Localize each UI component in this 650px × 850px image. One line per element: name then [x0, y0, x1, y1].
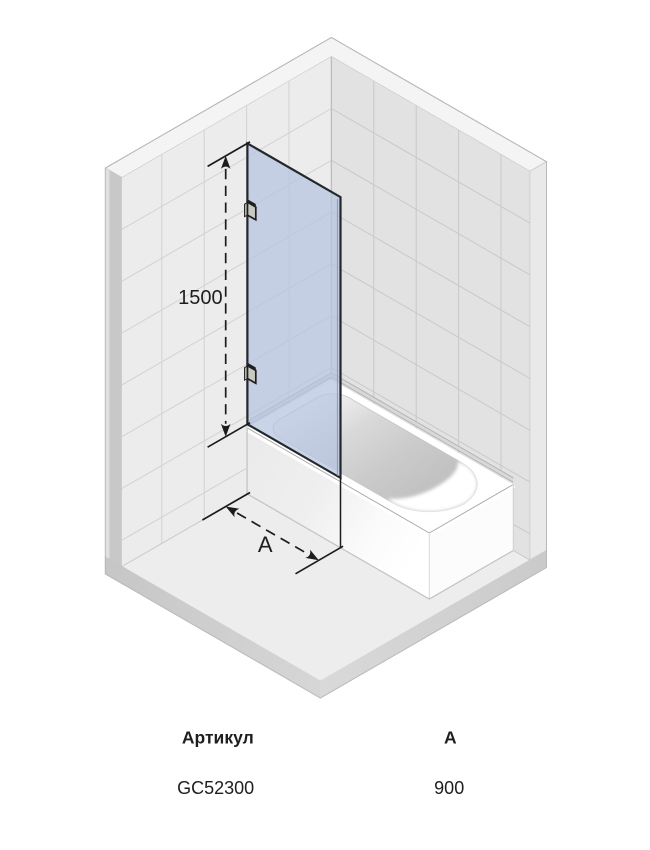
svg-text:A: A: [258, 532, 273, 557]
svg-text:Артикул: Артикул: [182, 728, 254, 748]
svg-text:900: 900: [434, 778, 464, 798]
svg-text:GC52300: GC52300: [177, 778, 254, 798]
svg-text:1500: 1500: [178, 287, 223, 309]
svg-text:A: A: [444, 728, 457, 748]
